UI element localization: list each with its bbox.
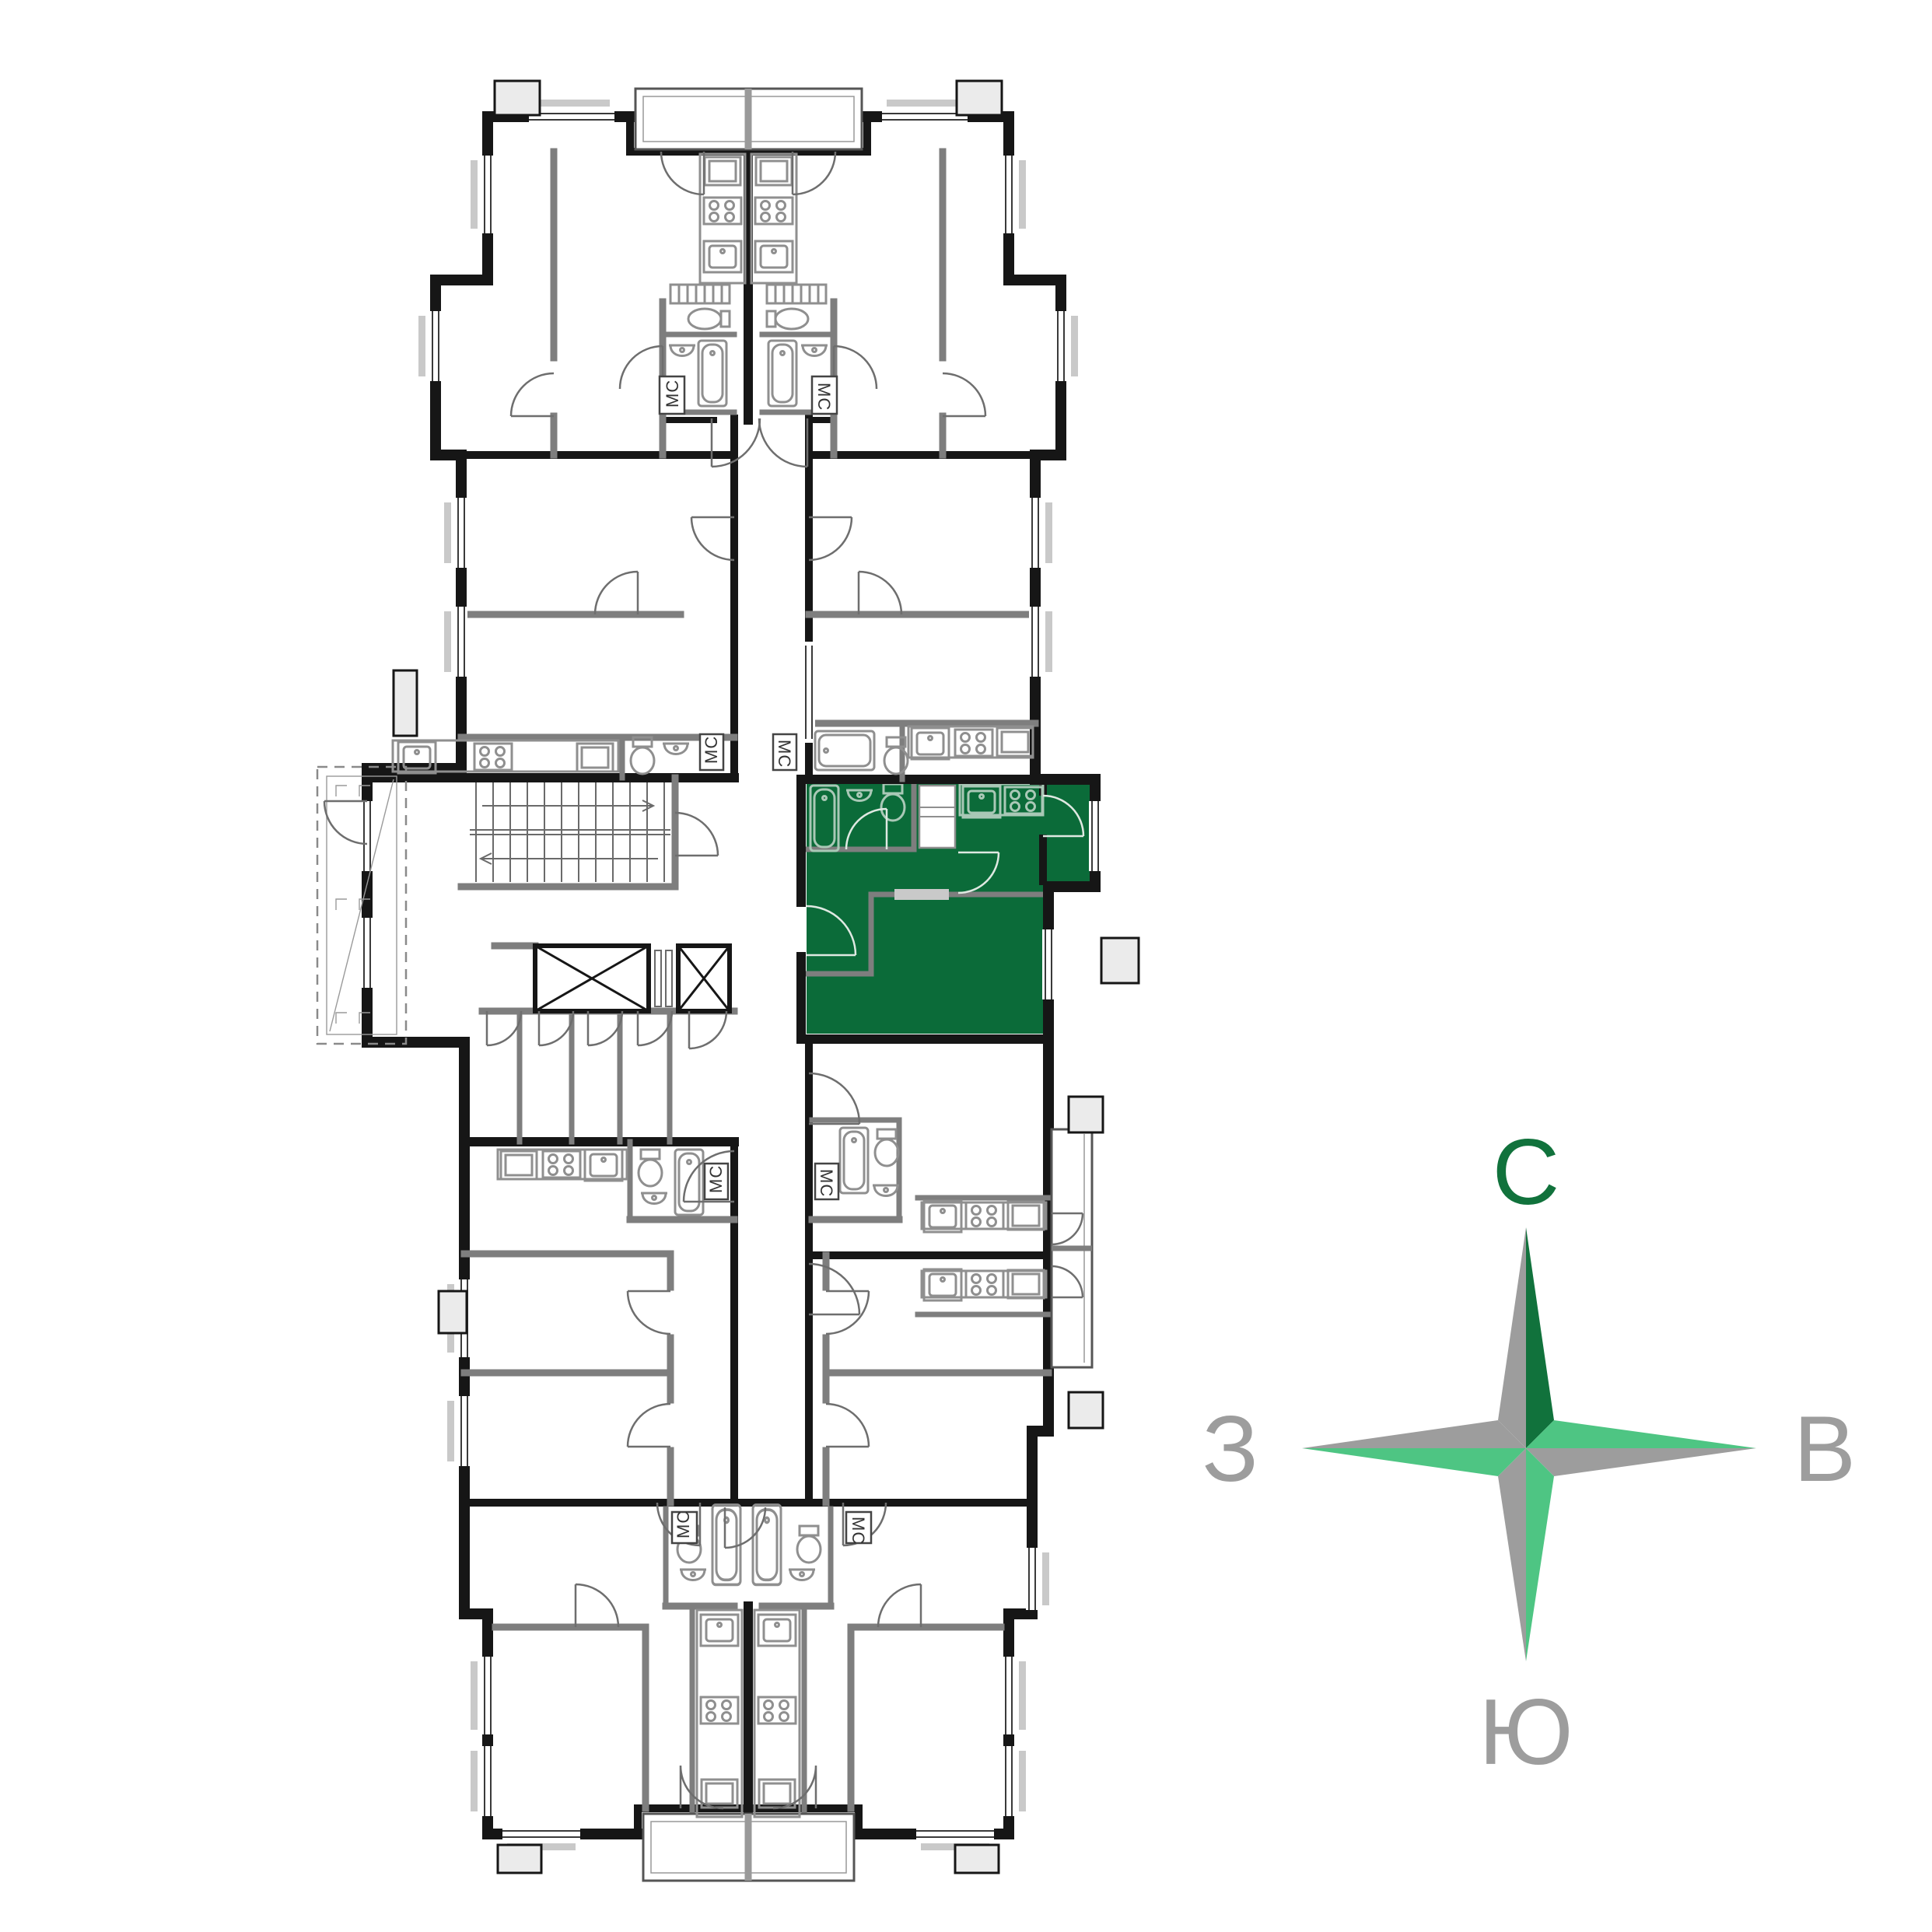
floor-plan-canvas: МС МС МС МС МС МС МС МС С В З Ю	[0, 0, 1932, 1932]
svg-text:МС: МС	[702, 736, 721, 764]
svg-text:МС: МС	[663, 380, 682, 408]
kitchen-c-left	[498, 1150, 627, 1181]
living-room-opening	[894, 889, 949, 900]
washing-machine-label: МС	[773, 734, 796, 770]
kitchen-d-right	[754, 1610, 800, 1817]
balcony-bottom	[643, 1814, 854, 1881]
kitchen-b-left	[393, 740, 618, 773]
svg-text:МС: МС	[849, 1517, 868, 1545]
washing-machine-label: МС	[846, 1512, 871, 1545]
washing-machine-label: МС	[660, 376, 684, 414]
compass-south-label: Ю	[1479, 1680, 1573, 1784]
svg-text:МС: МС	[814, 383, 834, 411]
compass-north-label: С	[1493, 1120, 1560, 1224]
bath-c-right	[840, 1128, 899, 1196]
loggia-right	[1052, 1129, 1092, 1367]
compass-star	[1302, 1227, 1756, 1661]
washing-machine-label: МС	[705, 1164, 728, 1199]
corridor-duct	[803, 646, 815, 739]
compass-rose: С В З Ю	[1202, 1120, 1857, 1784]
elevator-shafts	[535, 946, 730, 1011]
kitchen-c1-right	[922, 1201, 1046, 1232]
washing-machine-label: МС	[815, 1164, 838, 1199]
bath-d-right	[753, 1505, 821, 1584]
green-loggia-window	[1089, 801, 1101, 871]
kitchen-b-right	[908, 726, 1033, 759]
compass-west-label: З	[1202, 1397, 1258, 1501]
svg-text:МС: МС	[706, 1165, 726, 1193]
floor-plan-page: МС МС МС МС МС МС МС МС С В З Ю	[0, 0, 1932, 1932]
kitchen-d-left	[697, 1610, 742, 1817]
balcony-top	[635, 89, 862, 149]
bath-b-right	[815, 731, 908, 774]
washing-machine-label: МС	[672, 1510, 697, 1543]
stair-direction-arrows	[481, 800, 658, 864]
svg-text:МС: МС	[775, 740, 794, 768]
staircase	[470, 782, 670, 882]
washing-machine-label: МС	[812, 376, 837, 414]
kitchen-c2-right	[922, 1269, 1046, 1300]
green-living-window	[1042, 929, 1055, 999]
compass-east-label: В	[1794, 1397, 1856, 1501]
kitchen-top-right	[751, 154, 796, 283]
washing-machine-label: МС	[700, 734, 723, 770]
kitchen-top-left	[700, 154, 745, 283]
svg-text:МС: МС	[817, 1169, 836, 1197]
bath-c-left	[639, 1150, 703, 1215]
svg-text:МС: МС	[674, 1510, 693, 1538]
bath-b-left	[631, 737, 689, 774]
